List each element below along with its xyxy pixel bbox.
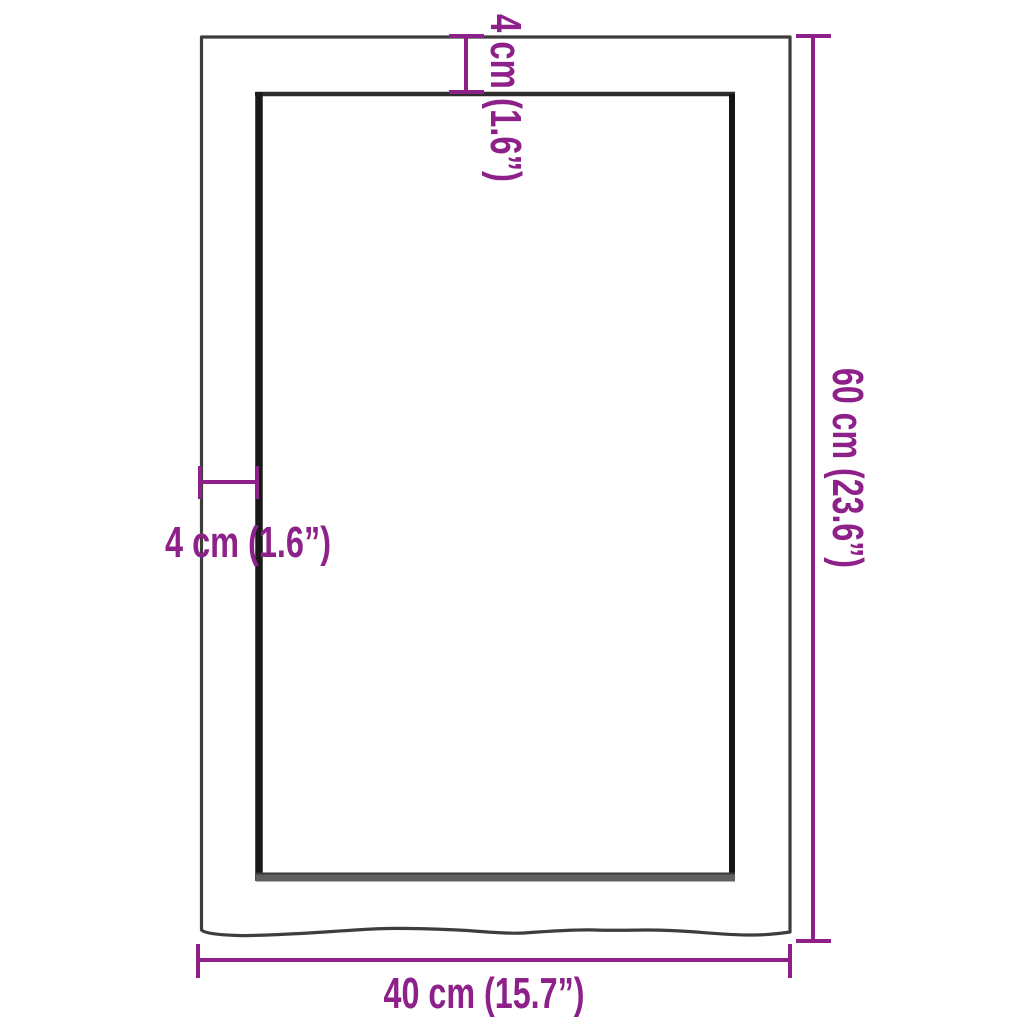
svg-text:4 cm (1.6”): 4 cm (1.6”) (165, 518, 331, 567)
svg-text:4 cm (1.6”): 4 cm (1.6”) (481, 14, 530, 182)
svg-text:40 cm (15.7”): 40 cm (15.7”) (384, 969, 585, 1018)
svg-text:60 cm (23.6”): 60 cm (23.6”) (823, 368, 872, 568)
